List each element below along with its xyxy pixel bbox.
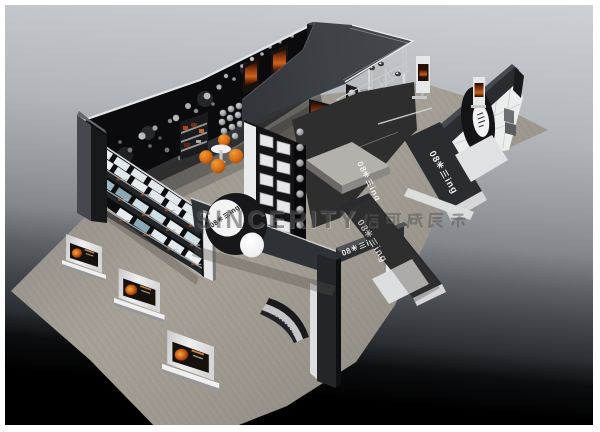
svg-text:SINCERITY: SINCERITY [195, 206, 359, 234]
